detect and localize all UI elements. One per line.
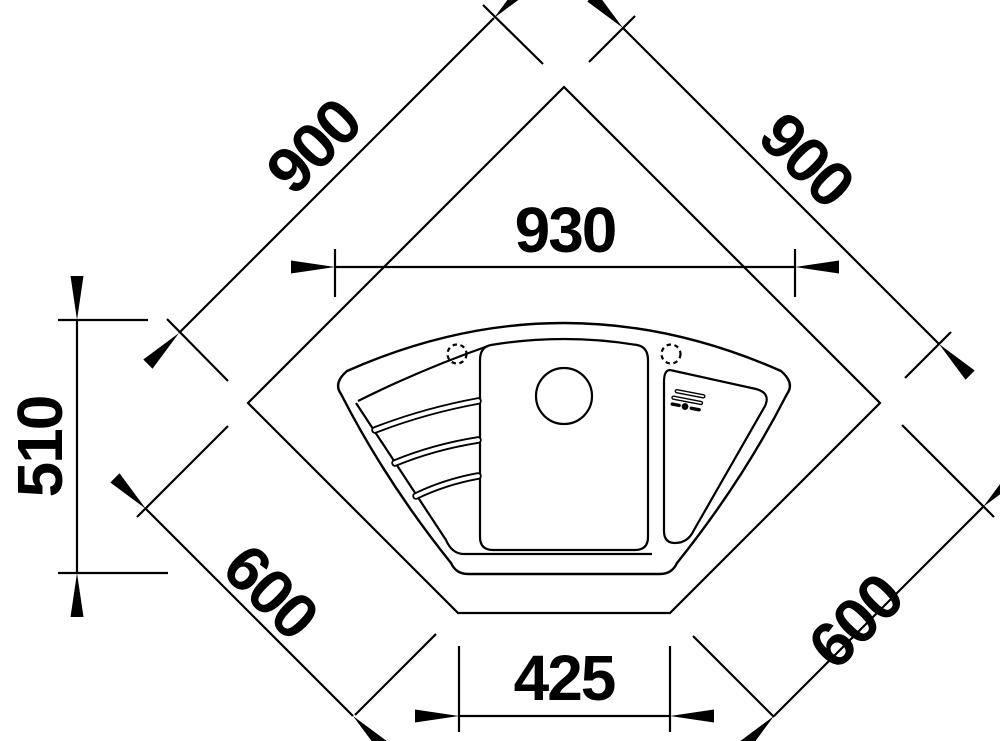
dim-label-425: 425	[514, 642, 615, 714]
ext-line	[167, 319, 228, 381]
main-bowl	[480, 339, 648, 550]
tap-hole-right-icon	[662, 345, 681, 364]
dim-label-510: 510	[4, 397, 76, 498]
dim-label-600-right: 600	[794, 560, 916, 682]
drawing-canvas: 930 510 425 900 900 600 60	[0, 0, 1000, 741]
dim-label-900-right: 900	[745, 98, 867, 220]
dim-depth-510: 510	[4, 320, 168, 573]
dim-cabinet-left-600: 600	[137, 426, 436, 716]
dim-cabinet-right-600: 600	[693, 425, 994, 717]
ext-line	[483, 5, 543, 64]
ext-line	[589, 16, 635, 62]
ext-line	[693, 636, 774, 717]
drainer-ribs	[375, 401, 478, 496]
ext-line	[905, 332, 951, 378]
dim-depth-right-900: 900	[589, 16, 951, 378]
dim-line	[623, 28, 939, 344]
basin-inner-edge	[356, 403, 652, 554]
ext-line	[355, 634, 436, 715]
sink-technical-drawing: 930 510 425 900 900 600 60	[0, 0, 1000, 741]
dim-label-900-left: 900	[252, 85, 374, 207]
dim-line	[179, 18, 494, 333]
ext-line	[902, 425, 994, 517]
dim-label-600-left: 600	[209, 530, 331, 652]
dim-label-930: 930	[515, 194, 616, 266]
drain-hole	[536, 368, 592, 424]
remote-drain-control-icon	[672, 391, 704, 413]
dim-front-425: 425	[459, 642, 670, 732]
sink-body	[338, 323, 790, 574]
basin-inner-arc-left	[358, 346, 488, 401]
sink-outer-rim	[338, 323, 790, 574]
ext-line	[137, 426, 228, 517]
dim-depth-left-900: 900	[167, 5, 543, 381]
